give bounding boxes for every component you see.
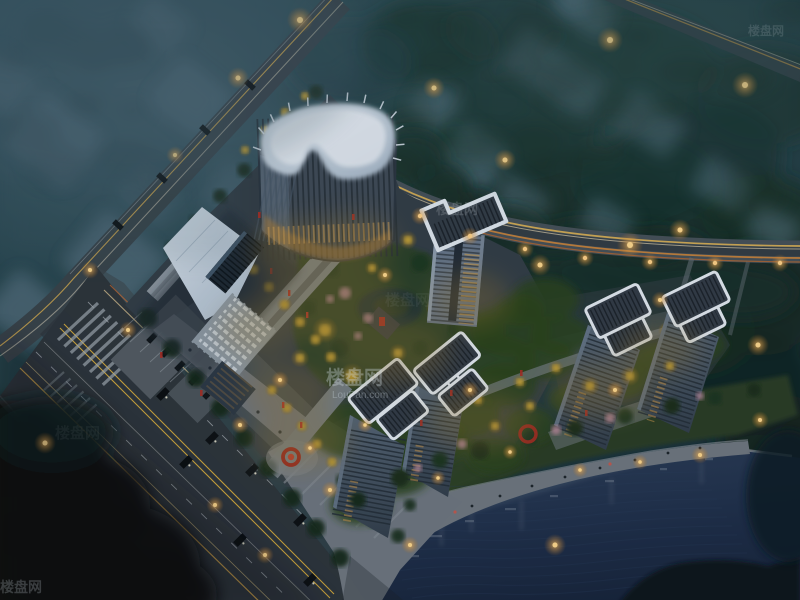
svg-text:楼盘网: 楼盘网 [0,579,42,595]
svg-text:楼盘网: 楼盘网 [55,424,100,442]
svg-text:楼盘网: 楼盘网 [385,291,430,309]
svg-text:楼盘网: 楼盘网 [436,201,478,217]
svg-text:楼盘网: 楼盘网 [326,366,383,389]
svg-text:LouPan.com: LouPan.com [332,390,388,401]
svg-text:楼盘网: 楼盘网 [748,23,784,38]
